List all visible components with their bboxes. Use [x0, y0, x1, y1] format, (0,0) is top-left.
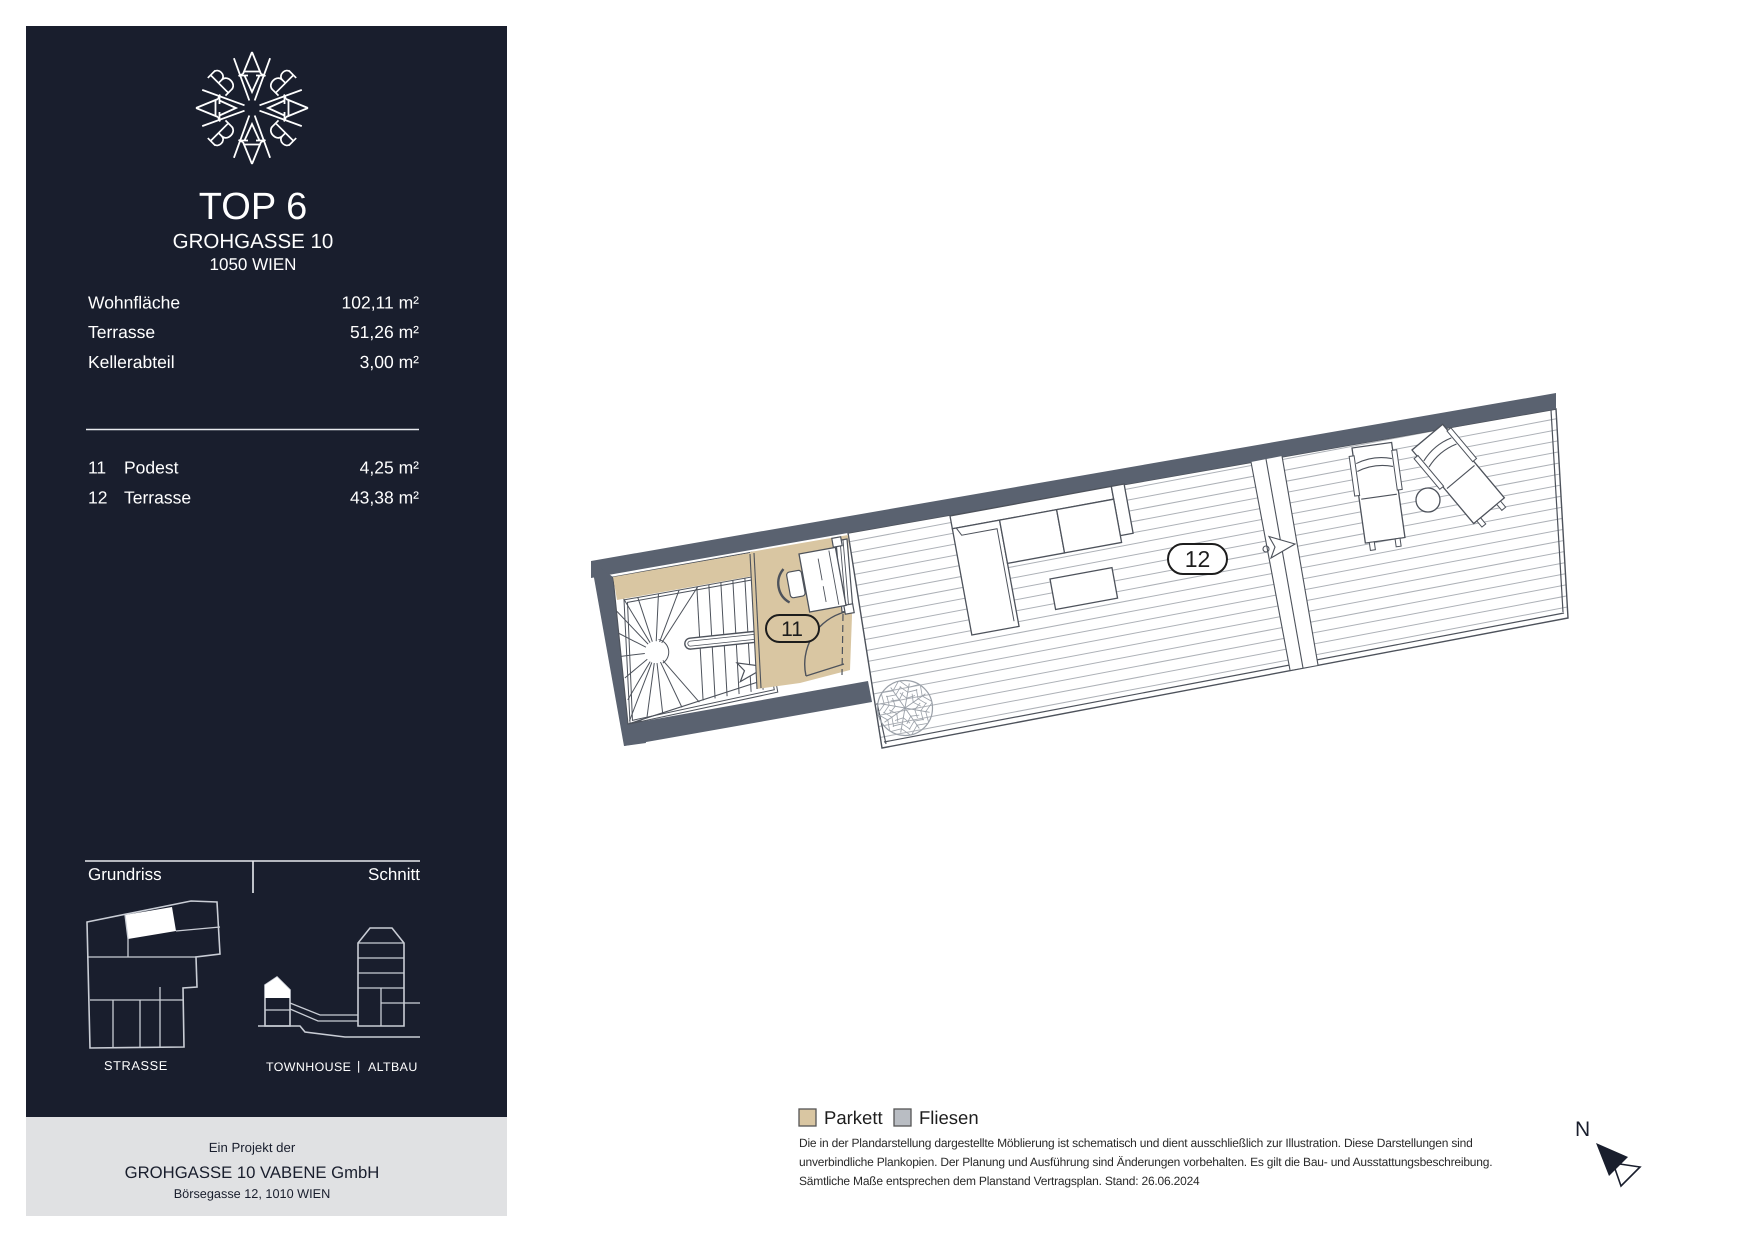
svg-text:1050 WIEN: 1050 WIEN: [210, 255, 297, 274]
svg-text:Die in der Plandarstellung dar: Die in der Plandarstellung dargestellte …: [799, 1136, 1473, 1150]
svg-text:Börsegasse 12, 1010 WIEN: Börsegasse 12, 1010 WIEN: [174, 1187, 331, 1201]
svg-text:Terrasse: Terrasse: [124, 487, 191, 507]
svg-text:Terrasse: Terrasse: [88, 322, 155, 342]
svg-text:Podest: Podest: [124, 458, 179, 478]
svg-text:43,38 m²: 43,38 m²: [350, 487, 419, 507]
svg-text:|: |: [357, 1059, 360, 1073]
svg-text:Parkett: Parkett: [824, 1107, 883, 1128]
svg-text:ALTBAU: ALTBAU: [368, 1060, 418, 1074]
svg-text:Ein Projekt der: Ein Projekt der: [209, 1140, 296, 1155]
svg-text:unverbindliche Plankopien. Der: unverbindliche Plankopien. Der Planung u…: [799, 1155, 1492, 1169]
svg-text:Kellerabteil: Kellerabteil: [88, 352, 175, 372]
svg-text:12: 12: [88, 487, 107, 507]
svg-text:TOWNHOUSE: TOWNHOUSE: [266, 1060, 351, 1074]
svg-text:GROHGASSE 10: GROHGASSE 10: [173, 230, 334, 253]
svg-text:11: 11: [781, 618, 803, 641]
svg-text:102,11 m²: 102,11 m²: [342, 293, 420, 313]
svg-text:12: 12: [1185, 546, 1211, 572]
svg-text:3,00 m²: 3,00 m²: [360, 352, 419, 372]
svg-text:TOP 6: TOP 6: [199, 186, 307, 228]
svg-text:Sämtliche Maße entsprechen dem: Sämtliche Maße entsprechen dem Planstand…: [799, 1174, 1200, 1188]
svg-text:Grundriss: Grundriss: [88, 865, 162, 884]
svg-text:STRASSE: STRASSE: [104, 1058, 168, 1073]
svg-text:GROHGASSE 10 VABENE GmbH: GROHGASSE 10 VABENE GmbH: [125, 1163, 380, 1182]
svg-text:11: 11: [88, 458, 106, 478]
svg-text:Schnitt: Schnitt: [368, 865, 420, 884]
svg-text:N: N: [1575, 1118, 1590, 1141]
svg-text:51,26 m²: 51,26 m²: [350, 322, 419, 342]
svg-text:4,25 m²: 4,25 m²: [360, 458, 419, 478]
svg-text:Wohnfläche: Wohnfläche: [88, 293, 180, 313]
svg-text:Fliesen: Fliesen: [919, 1107, 979, 1128]
